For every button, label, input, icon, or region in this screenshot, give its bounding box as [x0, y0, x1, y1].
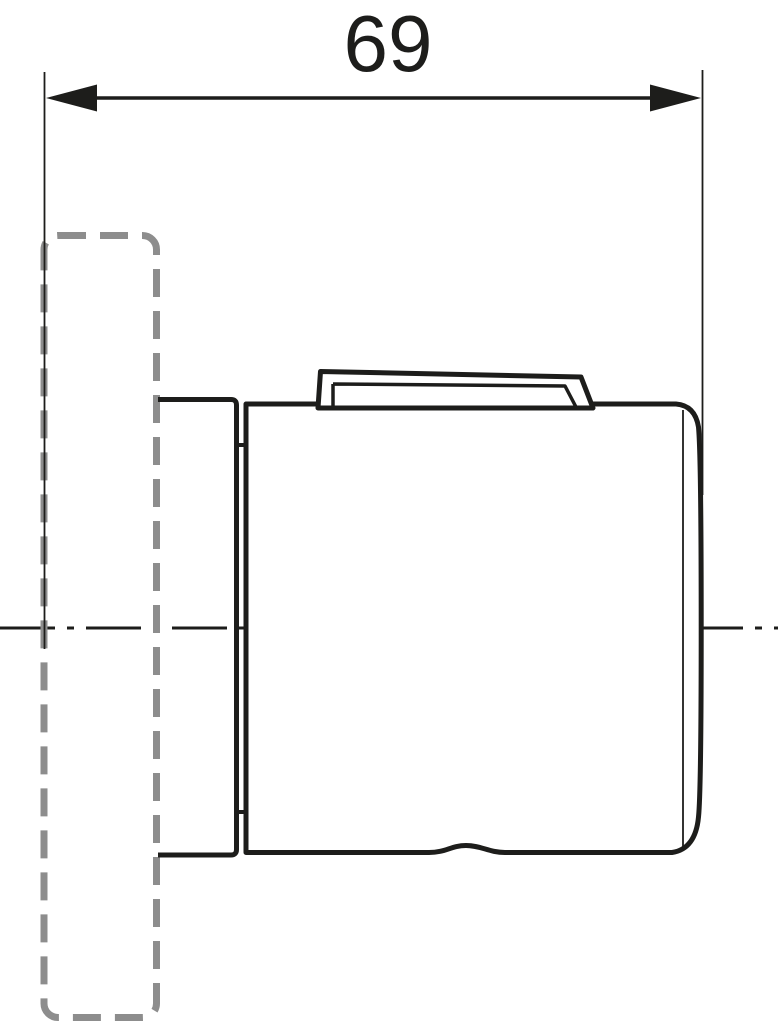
- fixing-tab-outline: [318, 372, 593, 409]
- dimension-arrow-right-icon: [650, 85, 701, 112]
- dimension-arrow-left-icon: [46, 85, 97, 112]
- dimension-label: 69: [344, 0, 433, 88]
- technical-drawing: 69: [0, 0, 778, 1024]
- body-outline: [246, 404, 701, 853]
- drawing-canvas: 69: [0, 0, 778, 1024]
